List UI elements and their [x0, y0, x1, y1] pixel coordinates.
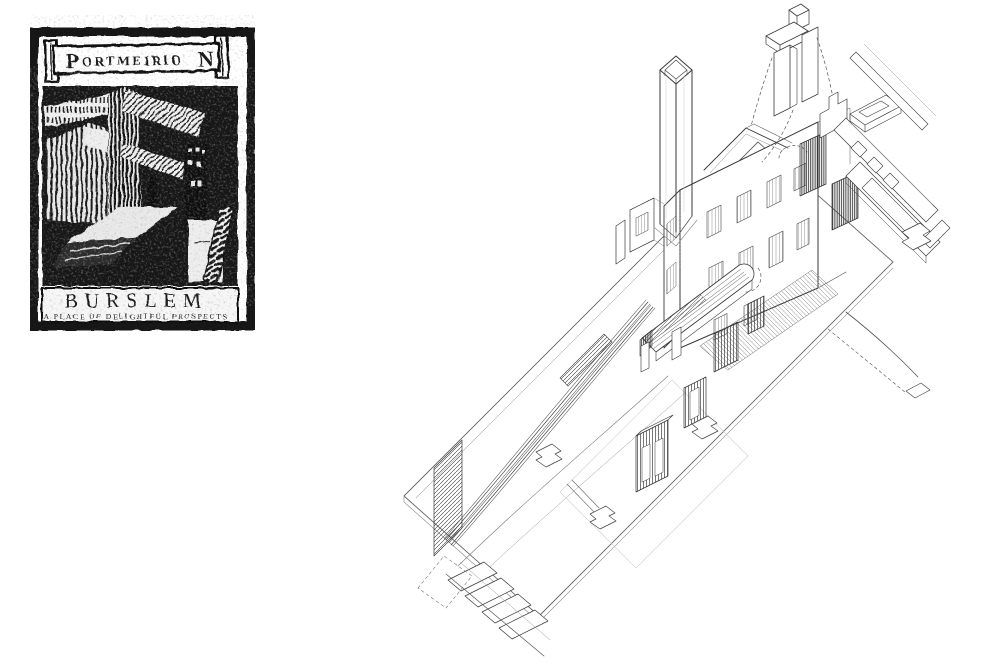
scanned-page: P ORTMEIRIO N [0, 0, 1000, 666]
column-footings [536, 416, 718, 529]
gable-frames [820, 92, 901, 138]
axonometric-drawing [0, 0, 1000, 666]
survey-marker [567, 480, 599, 512]
chimney [655, 56, 697, 246]
entry-steps [418, 556, 550, 656]
floor-frames [834, 44, 950, 263]
curved-ramp [828, 312, 930, 398]
west-wing [616, 198, 664, 264]
wall-hatched-end [434, 440, 462, 556]
